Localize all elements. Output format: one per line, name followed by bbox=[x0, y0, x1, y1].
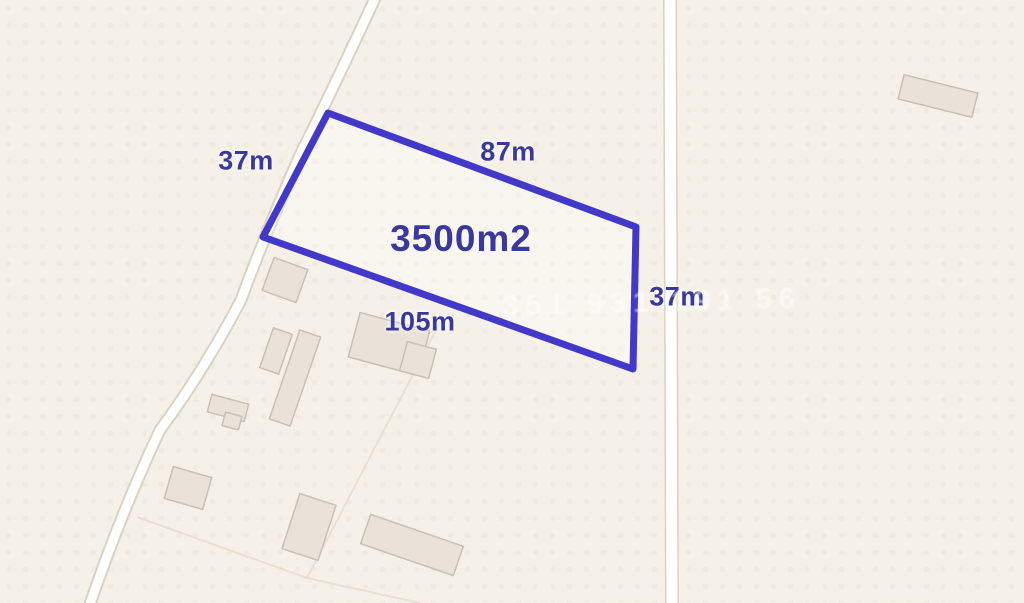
road-vertical bbox=[670, 0, 672, 603]
map-canvas[interactable]: 37m 87m 37m 105m 3500m2 351 931 191 56 bbox=[0, 0, 1024, 603]
map-layer bbox=[0, 0, 1024, 603]
